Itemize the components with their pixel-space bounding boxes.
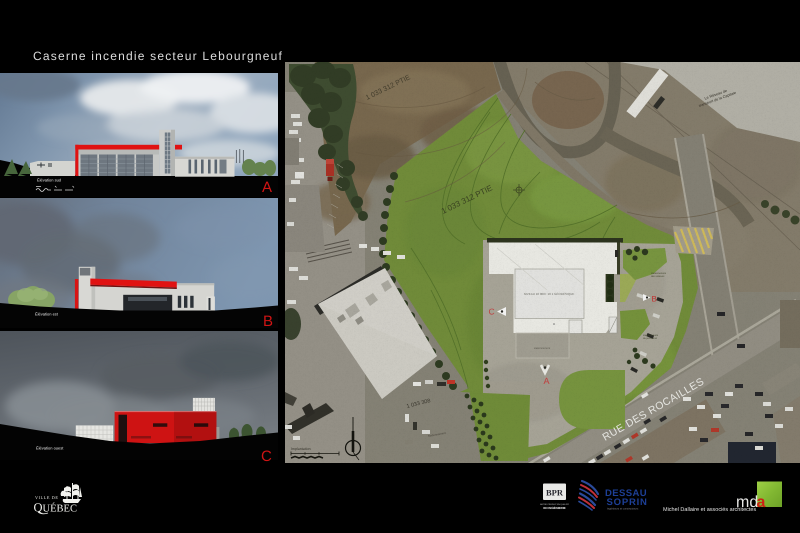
svg-text:SOPRIN: SOPRIN	[607, 497, 648, 508]
svg-text:md: md	[736, 494, 758, 511]
svg-text:Élévation ouest: Élévation ouest	[36, 446, 64, 451]
svg-text:Élévation sud: Élévation sud	[37, 178, 61, 183]
svg-text:VILLE DE: VILLE DE	[35, 495, 59, 500]
svg-text:a: a	[757, 494, 766, 511]
svg-text:QUÉBEC: QUÉBEC	[34, 501, 77, 515]
svg-text:Élévation est: Élévation est	[35, 312, 59, 317]
svg-text:Ingénieurs et constructeurs: Ingénieurs et constructeurs	[607, 508, 639, 511]
svg-text:EN INGÉNIERIE: EN INGÉNIERIE	[543, 506, 565, 510]
svg-text:BPR: BPR	[546, 488, 564, 498]
